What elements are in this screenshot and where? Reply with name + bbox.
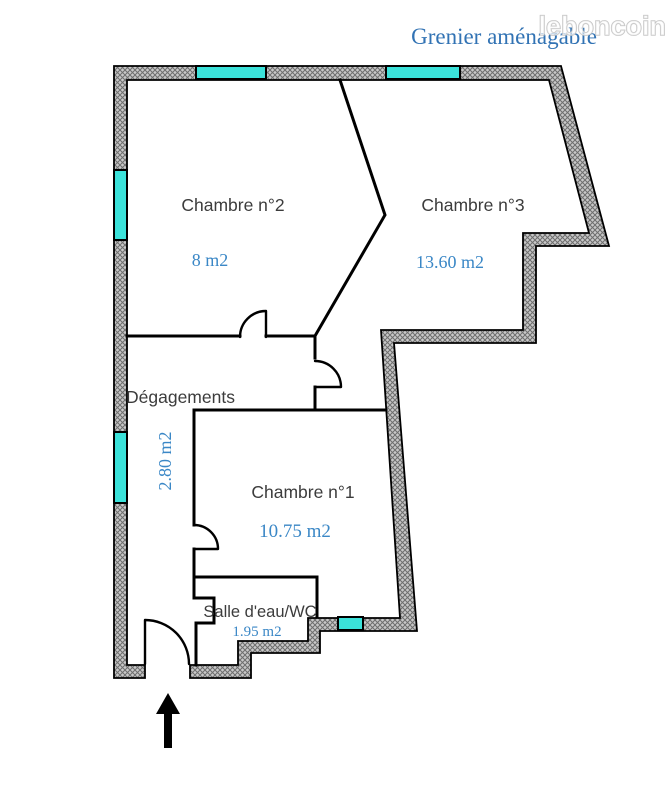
room-area-chambre2: 8 m2 bbox=[192, 250, 229, 270]
window-bottom bbox=[338, 617, 363, 630]
floorplan-page: Grenier aménagable Chambre n°2 8 m2 Cham… bbox=[0, 0, 672, 786]
room-label-degagements: Dégagements bbox=[126, 387, 235, 407]
door-chambre1 bbox=[194, 525, 218, 549]
room-area-salle-deau: 1.95 m2 bbox=[232, 624, 281, 640]
floorplan-drawing: Grenier aménagable Chambre n°2 8 m2 Cham… bbox=[0, 0, 672, 786]
room-label-salle-deau: Salle d'eau/WC bbox=[203, 603, 316, 621]
entrance-arrow-icon bbox=[156, 693, 180, 748]
wall-entry-notch bbox=[194, 577, 214, 665]
leboncoin-watermark-logo: leboncoin bbox=[539, 11, 667, 41]
room-label-chambre3: Chambre n°3 bbox=[421, 195, 524, 215]
door-chambre2 bbox=[240, 311, 266, 337]
room-label-chambre1: Chambre n°1 bbox=[251, 482, 354, 502]
room-label-chambre2: Chambre n°2 bbox=[181, 195, 284, 215]
window-left-lower bbox=[114, 432, 127, 503]
window-left-upper bbox=[114, 170, 127, 240]
window-top-right bbox=[386, 66, 460, 79]
door-chambre3 bbox=[315, 361, 341, 387]
wall-diagonal-chambre2-chambre3 bbox=[315, 80, 385, 336]
room-area-chambre1: 10.75 m2 bbox=[259, 521, 331, 542]
room-area-degagements: 2.80 m2 bbox=[155, 431, 175, 490]
window-top-left bbox=[196, 66, 266, 79]
room-area-chambre3: 13.60 m2 bbox=[416, 252, 484, 272]
door-entrance bbox=[145, 620, 189, 664]
interior-walls bbox=[127, 80, 386, 665]
exterior-wall bbox=[114, 66, 609, 678]
